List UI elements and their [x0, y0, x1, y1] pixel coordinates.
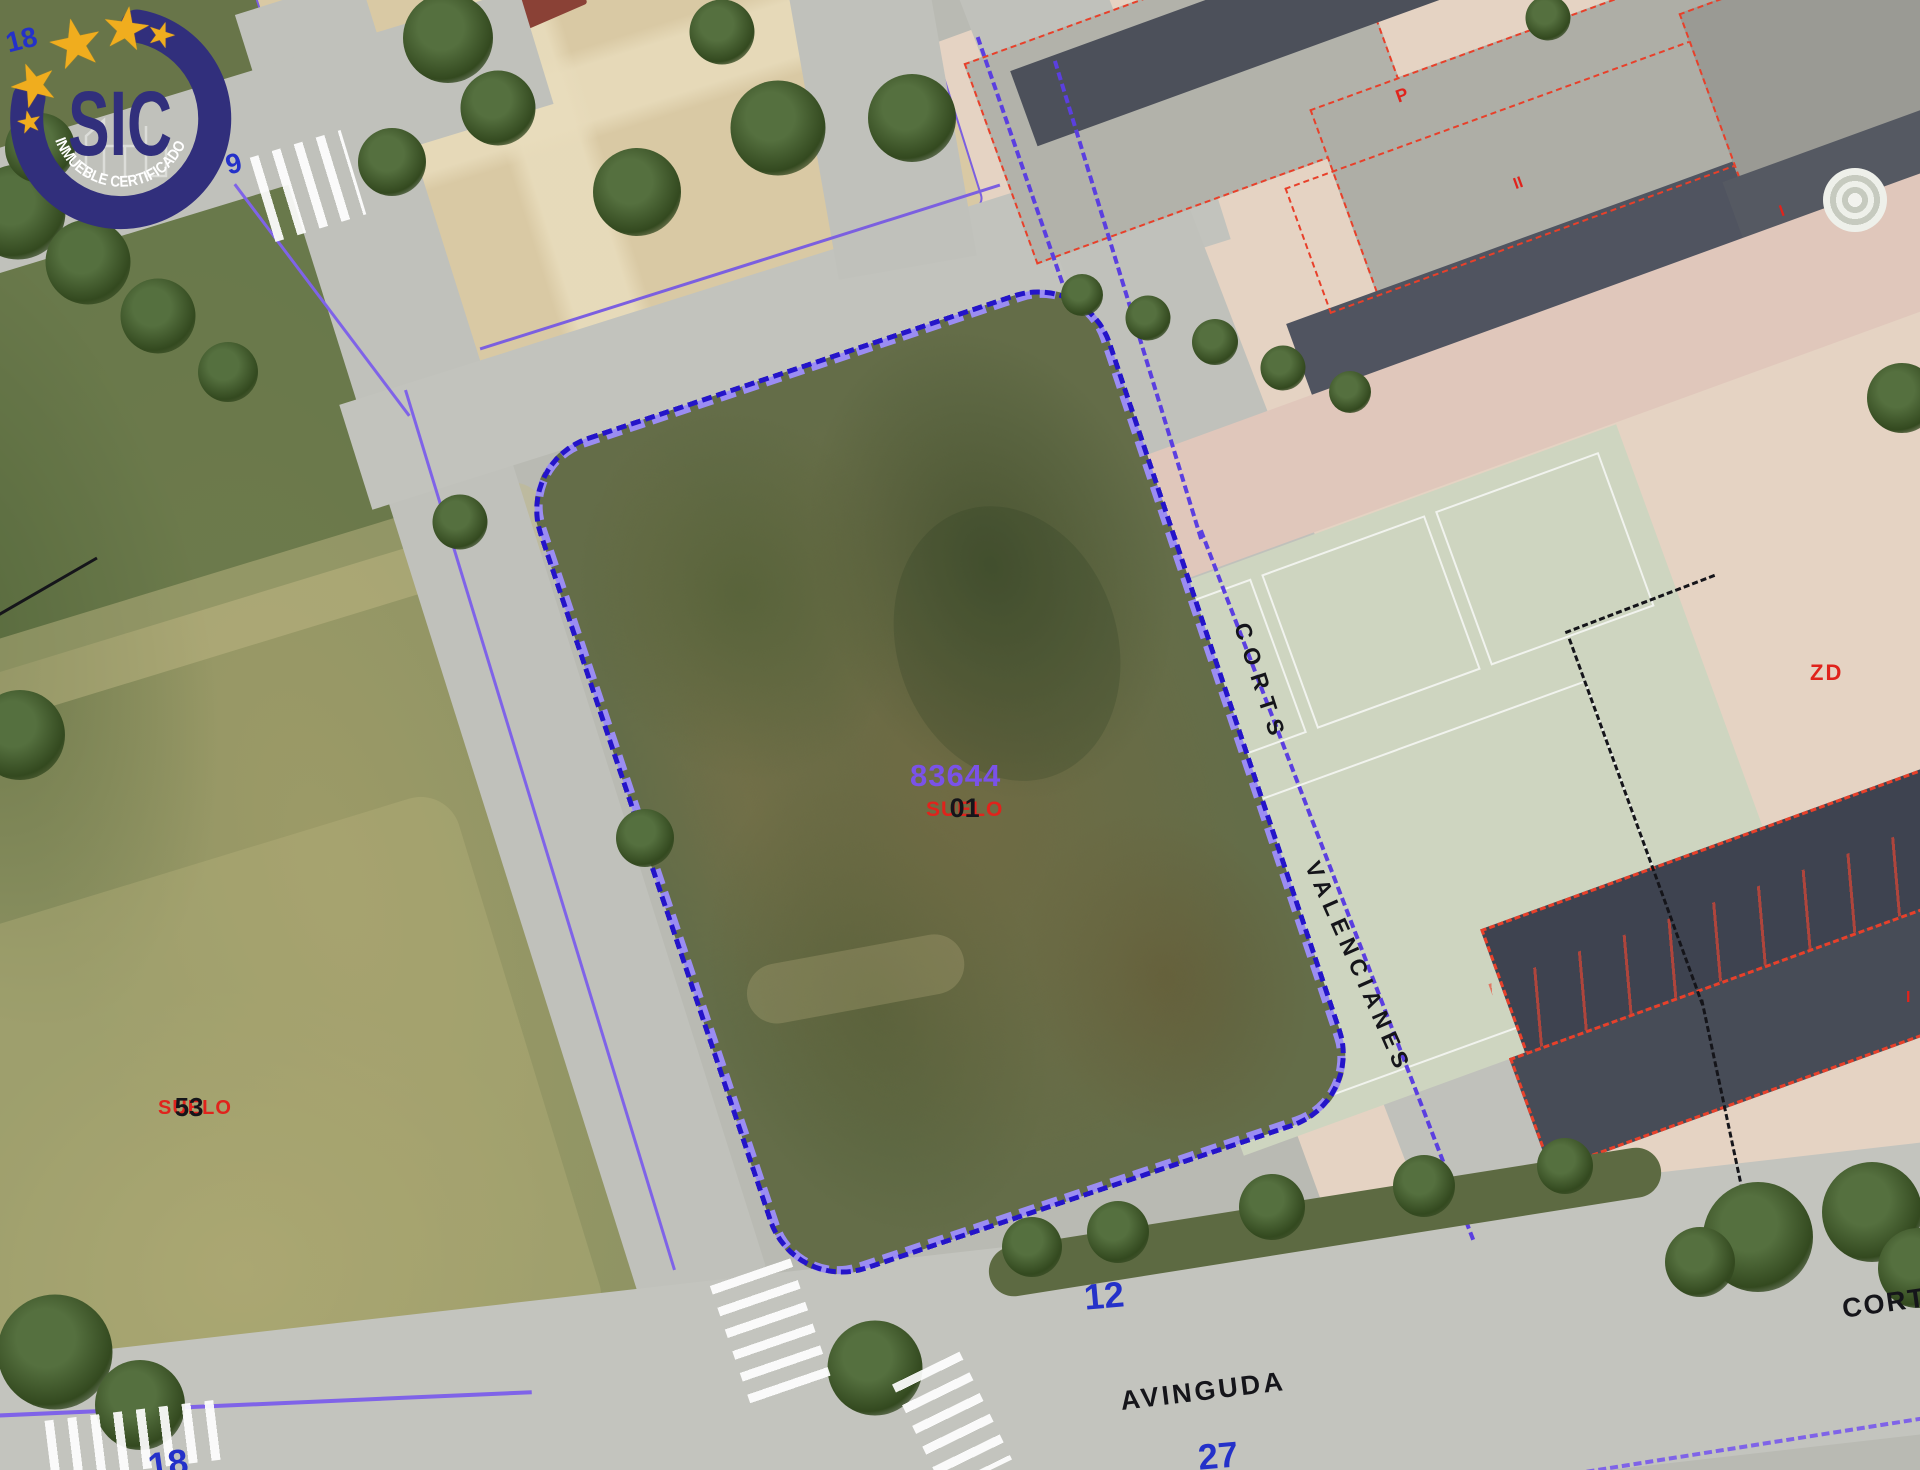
tree: [1393, 1155, 1455, 1217]
tree: [868, 74, 956, 162]
field-land-use-label: SUELO 53: [158, 1098, 232, 1118]
palm-tree: [1061, 274, 1103, 316]
parcel-worn-patch: [742, 929, 969, 1028]
zone-label-zd: ZD: [1810, 662, 1843, 684]
parcel-dark-patch: [858, 476, 1155, 811]
tree: [616, 809, 674, 867]
parcel-number: 83644: [910, 760, 1001, 791]
tree: [1002, 1217, 1062, 1277]
tree: [198, 342, 258, 402]
tree: [593, 148, 681, 236]
tree: [1537, 1138, 1593, 1194]
tree: [1239, 1174, 1305, 1240]
map-canvas: 18 9 83644 SUELO 01 SUELO 53 CORTS VALEN…: [0, 0, 1920, 1470]
tree: [1665, 1227, 1735, 1297]
palm-tree: [1192, 319, 1238, 365]
parcel-land-use-label: SUELO 01: [926, 799, 1003, 820]
sic-logo: SIC INMUEBLE CERTIFICADO ★ ★ ★ ★ ★: [8, 8, 243, 243]
house-number: 18: [146, 1443, 191, 1470]
tree: [690, 0, 755, 65]
star-icon: ★: [13, 106, 46, 141]
tree: [1087, 1201, 1149, 1263]
house-number: 27: [1197, 1436, 1240, 1470]
tree: [358, 128, 426, 196]
tree: [121, 279, 196, 354]
circle-target-icon: [1823, 168, 1887, 232]
zone-label-i: I: [1906, 990, 1910, 1006]
logo-brand-text: SIC: [68, 73, 172, 175]
tree: [461, 71, 536, 146]
palm-tree: [1329, 371, 1371, 413]
tree: [731, 81, 826, 176]
house-number: 12: [1083, 1276, 1126, 1315]
palm-tree: [1261, 346, 1306, 391]
subparcel-number: 53: [175, 1094, 204, 1120]
tree: [433, 495, 488, 550]
subparcel-number: 01: [950, 795, 980, 822]
palm-tree: [1126, 296, 1171, 341]
